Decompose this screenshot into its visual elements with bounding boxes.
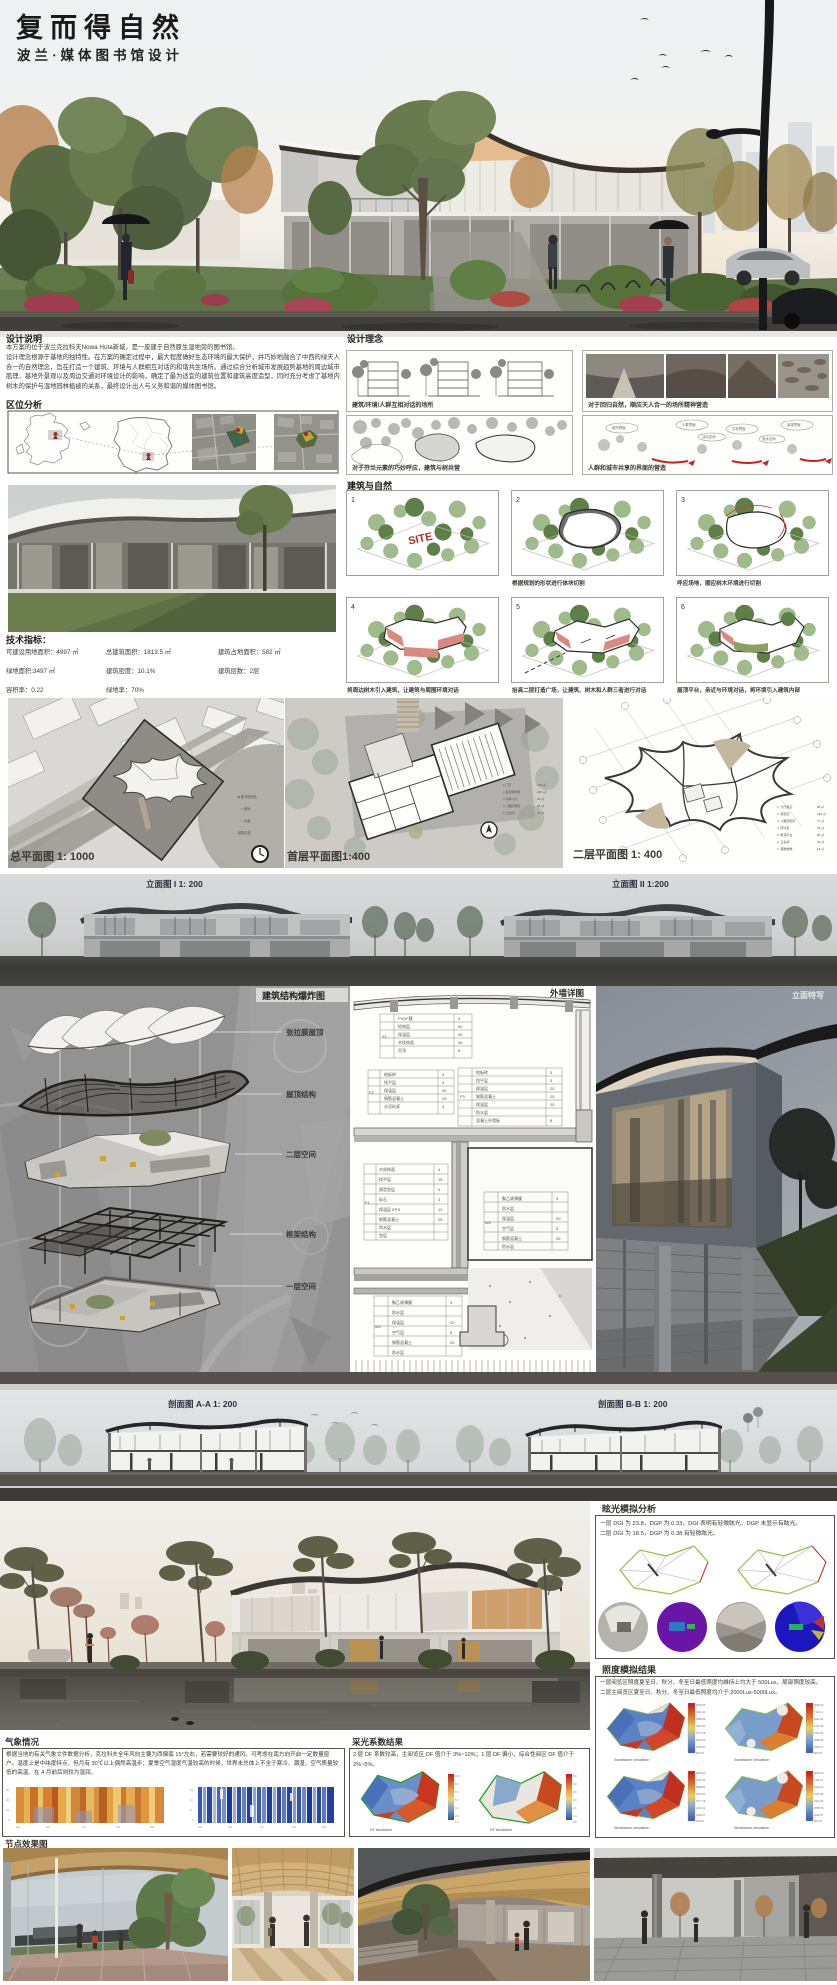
svg-text:6222.22: 6222.22	[814, 1785, 824, 1789]
svg-text:二层平面图 1: 400: 二层平面图 1: 400	[573, 848, 662, 861]
svg-text:Jul: Jul	[82, 1825, 86, 1829]
svg-text:W1: W1	[375, 1324, 382, 1329]
svg-text:5.0: 5.0	[573, 1774, 577, 1778]
svg-text:120 ㎡: 120 ㎡	[537, 782, 546, 787]
svg-text:屋顶平台，亲近与环境对话，将环境引入建筑内部: 屋顶平台，亲近与环境对话，将环境引入建筑内部	[677, 686, 800, 694]
svg-text:3333.33: 3333.33	[696, 1792, 706, 1796]
svg-text:保温层: 保温层	[502, 1215, 514, 1221]
svg-text:25: 25	[550, 1094, 555, 1099]
svg-text:2. 阅览区: 2. 阅览区	[777, 811, 789, 816]
svg-text:5: 5	[516, 604, 520, 611]
svg-text:水泥砂浆: 水泥砂浆	[384, 1103, 400, 1109]
svg-text:建筑/环境/人群互相对话的场所: 建筑/环境/人群互相对话的场所	[352, 401, 433, 409]
svg-text:Apr: Apr	[228, 1825, 232, 1829]
svg-text:F3: F3	[460, 1094, 465, 1099]
svg-text:40: 40	[458, 1032, 463, 1037]
svg-text:77 ㎡: 77 ㎡	[817, 818, 824, 823]
svg-text:首层平面图1:400: 首层平面图1:400	[287, 849, 370, 863]
svg-text:0: 0	[192, 1818, 194, 1822]
svg-text:88 ㎡: 88 ㎡	[817, 804, 824, 809]
svg-text:F1: F1	[365, 1200, 370, 1205]
svg-text:30: 30	[458, 1040, 463, 1045]
svg-text:0.5: 0.5	[573, 1820, 577, 1824]
svg-text:木质饰面: 木质饰面	[379, 1166, 395, 1172]
svg-text:总平面图 1: 1000: 总平面图 1: 1000	[10, 849, 94, 863]
svg-text:地板砖: 地板砖	[384, 1071, 396, 1077]
svg-text:聚乙烯薄膜: 聚乙烯薄膜	[392, 1299, 412, 1305]
svg-text:景观界面: 景观界面	[787, 422, 801, 427]
svg-text:7. 疏散楼梯: 7. 疏散楼梯	[777, 846, 792, 851]
svg-text:25: 25	[450, 1340, 455, 1345]
svg-text:3.6: 3.6	[573, 1790, 577, 1794]
svg-text:96 ㎡: 96 ㎡	[817, 832, 824, 837]
svg-text:Oct: Oct	[292, 1825, 296, 1829]
svg-text:X1: X1	[382, 1034, 388, 1039]
svg-text:防水层: 防水层	[476, 1109, 488, 1115]
svg-text:20: 20	[450, 1320, 455, 1325]
svg-text:二层空间: 二层空间	[286, 1149, 316, 1159]
svg-text:0: 0	[8, 1818, 10, 1822]
svg-text:垫层: 垫层	[379, 1232, 387, 1238]
svg-text:对于芬兰元素的巧妙呼应，建筑与树共营: 对于芬兰元素的巧妙呼应，建筑与树共营	[352, 464, 460, 472]
svg-text:钢筋混凝土: 钢筋混凝土	[502, 1235, 522, 1241]
svg-text:■ 图书馆用地: ■ 图书馆用地	[238, 794, 258, 799]
svg-text:10: 10	[6, 1808, 9, 1812]
svg-text:40: 40	[442, 1088, 447, 1093]
svg-text:6: 6	[681, 604, 685, 611]
svg-text:3555.56: 3555.56	[814, 1806, 824, 1810]
svg-text:1 门厅: 1 门厅	[503, 782, 512, 787]
svg-text:2777.78: 2777.78	[696, 1731, 706, 1735]
svg-text:2666.67: 2666.67	[814, 1745, 824, 1749]
svg-text:4444.44: 4444.44	[696, 1778, 706, 1782]
svg-text:对于回归自然，顺应天人合一的场所精神营造: 对于回归自然，顺应天人合一的场所精神营造	[588, 401, 708, 409]
svg-text:□ 绿地: □ 绿地	[241, 806, 251, 811]
svg-text:4444.44: 4444.44	[814, 1731, 824, 1735]
svg-text:1: 1	[351, 497, 355, 504]
svg-text:25 ㎡: 25 ㎡	[817, 825, 824, 830]
svg-text:5000.00: 5000.00	[696, 1771, 706, 1775]
svg-text:Illuminance simulation: Illuminance simulation	[614, 1826, 649, 1830]
svg-text:滨水空间: 滨水空间	[762, 436, 776, 441]
svg-text:25: 25	[442, 1096, 447, 1101]
svg-text:保温层: 保温层	[384, 1087, 396, 1093]
svg-text:Dec: Dec	[150, 1825, 155, 1829]
svg-text:4 儿童阅览区: 4 儿童阅览区	[503, 803, 521, 808]
svg-text:吊顶: 吊顶	[398, 1048, 406, 1053]
svg-text:空气层: 空气层	[392, 1329, 404, 1335]
svg-text:外墙详图: 外墙详图	[549, 988, 584, 998]
svg-text:6222.22: 6222.22	[814, 1717, 824, 1721]
svg-text:50: 50	[458, 1024, 463, 1029]
svg-text:24: 24	[190, 1788, 193, 1792]
svg-text:18 ㎡: 18 ㎡	[817, 846, 824, 851]
svg-text:保温层: 保温层	[392, 1319, 404, 1325]
svg-text:8000.00: 8000.00	[814, 1771, 824, 1775]
svg-text:800.00: 800.00	[814, 1751, 822, 1755]
svg-text:2 多媒体阅览: 2 多媒体阅览	[503, 789, 521, 794]
svg-text:1.4: 1.4	[573, 1814, 577, 1818]
svg-text:90 ㎡: 90 ㎡	[537, 796, 544, 801]
svg-text:Illuminance simulation: Illuminance simulation	[734, 1826, 769, 1830]
svg-text:2222.22: 2222.22	[696, 1738, 706, 1742]
svg-text:Illuminance simulation: Illuminance simulation	[734, 1758, 769, 1762]
svg-text:4444.44: 4444.44	[814, 1799, 824, 1803]
svg-text:5 卫生间: 5 卫生间	[503, 810, 515, 815]
svg-text:20: 20	[550, 1102, 555, 1107]
svg-text:Dec: Dec	[322, 1825, 327, 1829]
svg-text:木纹饰面: 木纹饰面	[398, 1039, 414, 1045]
svg-text:3. 儿童阅览区: 3. 儿童阅览区	[777, 818, 795, 823]
svg-text:2: 2	[516, 497, 520, 504]
svg-text:86 ㎡: 86 ㎡	[537, 803, 544, 808]
svg-text:25: 25	[556, 1236, 561, 1241]
svg-text:5333.33: 5333.33	[814, 1724, 824, 1728]
svg-text:30: 30	[6, 1788, 9, 1792]
svg-text:1.0: 1.0	[455, 1820, 459, 1824]
svg-text:人群界面: 人群界面	[682, 422, 696, 427]
svg-text:地板砖: 地板砖	[476, 1069, 488, 1075]
svg-text:16: 16	[190, 1798, 193, 1802]
svg-text:Illuminance simulation: Illuminance simulation	[614, 1758, 649, 1762]
svg-text:1666.67: 1666.67	[696, 1745, 706, 1749]
svg-text:30 ㎡: 30 ㎡	[537, 810, 544, 815]
svg-text:12: 12	[438, 1207, 443, 1212]
svg-text:2.1: 2.1	[573, 1806, 577, 1810]
svg-text:2777.78: 2777.78	[696, 1799, 706, 1803]
svg-text:屋顶结构: 屋顶结构	[286, 1089, 316, 1099]
svg-text:4.3: 4.3	[455, 1806, 459, 1810]
svg-text:DF simulation: DF simulation	[490, 1828, 512, 1832]
svg-text:5.7: 5.7	[455, 1798, 459, 1802]
svg-text:根据规划的形状进行体块切割: 根据规划的形状进行体块切割	[512, 579, 585, 587]
svg-text:2666.67: 2666.67	[814, 1813, 824, 1817]
svg-text:防水层: 防水层	[502, 1243, 514, 1249]
svg-text:建筑结构爆炸图: 建筑结构爆炸图	[262, 990, 325, 1001]
svg-text:2222.22: 2222.22	[696, 1806, 706, 1810]
svg-text:4: 4	[351, 604, 355, 611]
svg-text:8.6: 8.6	[455, 1782, 459, 1786]
svg-text:保温层: 保温层	[476, 1101, 488, 1107]
svg-text:保温层 EPS: 保温层 EPS	[379, 1206, 400, 1212]
svg-text:找平层: 找平层	[384, 1079, 396, 1085]
svg-text:4.3: 4.3	[573, 1782, 577, 1786]
svg-text:3555.56: 3555.56	[814, 1738, 824, 1742]
svg-text:钢筋混凝土: 钢筋混凝土	[392, 1339, 412, 1345]
svg-text:500.00: 500.00	[696, 1751, 704, 1755]
svg-text:5. 屋顶平台: 5. 屋顶平台	[777, 832, 792, 837]
svg-text:空气层: 空气层	[502, 1225, 514, 1231]
svg-text:1. 大厅挑空: 1. 大厅挑空	[777, 804, 792, 809]
svg-text:2.9: 2.9	[455, 1814, 459, 1818]
svg-text:立面特写: 立面特写	[792, 990, 824, 1000]
svg-text:呼应场地，顺应树木环境进行切割: 呼应场地，顺应树木环境进行切割	[677, 579, 761, 587]
svg-text:5333.33: 5333.33	[814, 1792, 824, 1796]
svg-text:将周边树木引入建筑，让建筑与周围环境对话: 将周边树木引入建筑，让建筑与周围环境对话	[347, 686, 459, 694]
svg-text:钢筋混凝土: 钢筋混凝土	[384, 1095, 404, 1101]
svg-text:1666.67: 1666.67	[696, 1813, 706, 1817]
svg-text:钢筋混凝土: 钢筋混凝土	[379, 1216, 399, 1222]
svg-text:Jan: Jan	[16, 1825, 21, 1829]
svg-text:保温层: 保温层	[476, 1085, 488, 1091]
svg-text:保温层: 保温层	[398, 1031, 410, 1037]
svg-text:3: 3	[681, 497, 685, 504]
svg-text:检修层: 检修层	[398, 1023, 410, 1029]
svg-text:15: 15	[438, 1177, 443, 1182]
svg-text:找平层: 找平层	[476, 1077, 488, 1083]
svg-text:20: 20	[6, 1798, 9, 1802]
svg-text:钢筋混凝土: 钢筋混凝土	[476, 1093, 496, 1099]
svg-text:混凝土外墙板: 混凝土外墙板	[476, 1117, 500, 1123]
svg-text:共享界面: 共享界面	[732, 426, 746, 431]
svg-text:人群和城市共享的界面的营造: 人群和城市共享的界面的营造	[588, 464, 666, 472]
svg-text:3888.89: 3888.89	[696, 1717, 706, 1721]
svg-text:Oct: Oct	[116, 1825, 120, 1829]
svg-text:隔音垫层: 隔音垫层	[379, 1186, 395, 1192]
svg-text:7111.11: 7111.11	[814, 1778, 823, 1782]
svg-text:8: 8	[190, 1808, 192, 1812]
svg-text:一层空间: 一层空间	[286, 1281, 316, 1291]
svg-text:20: 20	[550, 1086, 555, 1091]
svg-text:F2: F2	[369, 1090, 374, 1095]
svg-text:砾石: 砾石	[379, 1196, 387, 1202]
svg-text:DF simulation: DF simulation	[370, 1828, 392, 1832]
svg-text:4. 研讨室: 4. 研讨室	[777, 825, 789, 830]
svg-text:3 书库·办公: 3 书库·办公	[503, 796, 519, 801]
svg-text:25: 25	[438, 1217, 443, 1222]
svg-text:800.00: 800.00	[814, 1819, 822, 1823]
svg-text:Jan: Jan	[198, 1825, 203, 1829]
svg-text:10.0: 10.0	[455, 1774, 461, 1778]
svg-text:防水层: 防水层	[502, 1205, 514, 1211]
svg-text:3333.33: 3333.33	[696, 1724, 706, 1728]
svg-text:W2: W2	[485, 1220, 492, 1225]
svg-text:20: 20	[556, 1216, 561, 1221]
svg-text:○ 水面: ○ 水面	[241, 818, 250, 823]
svg-text:500.00: 500.00	[696, 1819, 704, 1823]
svg-text:框架结构: 框架结构	[286, 1229, 316, 1239]
svg-text:张拉膜屋顶: 张拉膜屋顶	[286, 1027, 324, 1037]
svg-text:5000.00: 5000.00	[696, 1703, 706, 1707]
svg-text:防水层: 防水层	[392, 1309, 404, 1315]
svg-text:7.1: 7.1	[455, 1790, 459, 1794]
svg-text:30 ㎡: 30 ㎡	[817, 839, 824, 844]
svg-text:4444.44: 4444.44	[696, 1710, 706, 1714]
svg-text:3888.89: 3888.89	[696, 1785, 706, 1789]
svg-text:城市界面: 城市界面	[612, 425, 626, 430]
svg-text:建筑红线: 建筑红线	[238, 830, 252, 835]
svg-text:活动空间: 活动空间	[702, 434, 716, 439]
svg-text:防水层: 防水层	[392, 1349, 404, 1355]
svg-text:Jul: Jul	[260, 1825, 264, 1829]
svg-text:Apr: Apr	[46, 1825, 50, 1829]
svg-text:7111.11: 7111.11	[814, 1710, 823, 1714]
svg-text:320 ㎡: 320 ㎡	[817, 811, 826, 816]
svg-text:抬高二层打造广场，让建筑、树木和人群三者进行对话: 抬高二层打造广场，让建筑、树木和人群三者进行对话	[512, 686, 647, 694]
svg-text:2.9: 2.9	[573, 1798, 577, 1802]
svg-text:240 ㎡: 240 ㎡	[537, 789, 546, 794]
svg-text:找平层: 找平层	[379, 1176, 391, 1182]
svg-text:防水层: 防水层	[379, 1224, 391, 1230]
svg-text:8000.00: 8000.00	[814, 1703, 824, 1707]
svg-text:6. 卫生间: 6. 卫生间	[777, 839, 789, 844]
svg-text:聚乙烯薄膜: 聚乙烯薄膜	[502, 1195, 522, 1201]
svg-text:PVDF膜: PVDF膜	[398, 1015, 413, 1021]
